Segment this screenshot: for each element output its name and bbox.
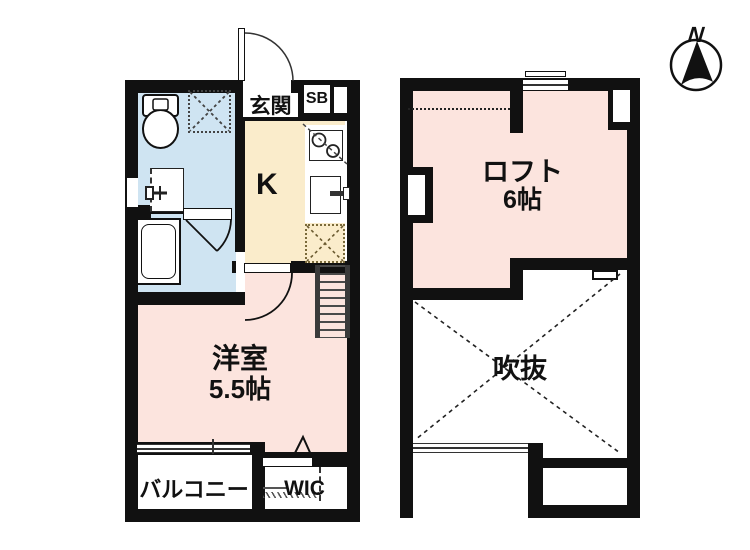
entrance-label: 玄関 [243, 93, 298, 117]
laundry-space-cross [190, 92, 229, 131]
toilet-icon [143, 95, 178, 148]
symbol-overlay [0, 0, 750, 550]
floor-plan-canvas: 玄関 SB K 洋室 5.5帖 バルコニー WIC ロフト 6帖 吹抜 N [0, 0, 750, 550]
entrance-door-arc [245, 33, 293, 81]
western-room-size: 5.5帖 [165, 372, 315, 402]
bath-door-swing [186, 220, 231, 251]
balcony-label: バルコニー [134, 473, 254, 503]
void-label: 吹抜 [458, 350, 582, 382]
wic-label: WIC [262, 475, 347, 503]
compass-north-label: N [687, 22, 706, 48]
refrigerator-cross [307, 226, 343, 261]
shoebox-label: SB [304, 85, 330, 113]
stove-dash-diagonal [303, 124, 347, 164]
loft-size: 6帖 [450, 184, 595, 212]
wic-door-triangle [293, 437, 312, 457]
kitchen-label: K [256, 168, 278, 202]
washbasin-faucet [146, 186, 167, 200]
room-door-arc [245, 273, 292, 320]
